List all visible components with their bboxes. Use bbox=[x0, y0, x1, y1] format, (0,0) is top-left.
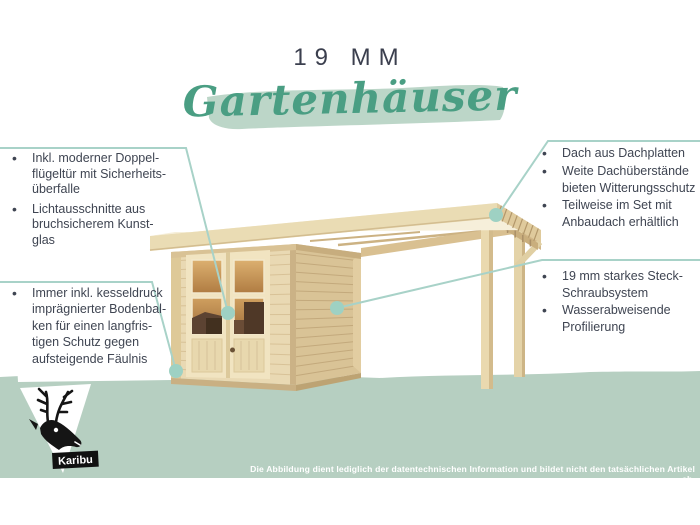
feature-bullet: Inkl. moderner Doppel- flügeltür mit Sic… bbox=[12, 151, 194, 198]
ground-band bbox=[0, 371, 700, 478]
callout-dot-door bbox=[221, 306, 235, 320]
garden-house-illustration bbox=[150, 203, 541, 391]
bullet-marker bbox=[542, 163, 562, 181]
feature-bullet: Immer inkl. kesseldruck imprägnierter Bo… bbox=[12, 285, 194, 367]
bullet-marker bbox=[542, 145, 562, 163]
callout-block-right-middle: 19 mm starkes Steck- Schraubsystem Wasse… bbox=[542, 268, 700, 336]
feature-text-line: Anbaudach erhältlich bbox=[562, 214, 700, 231]
callout-block-left-top: Inkl. moderner Doppel- flügeltür mit Sic… bbox=[12, 151, 194, 252]
feature-bullet: Teilweise im Set mit Anbaudach erhältlic… bbox=[542, 197, 700, 231]
feature-text-line: Weite Dachüberstände bbox=[562, 163, 700, 180]
house-side-wall bbox=[296, 244, 361, 385]
page-title: 19 MM bbox=[0, 44, 700, 72]
callout-block-left-bottom: Immer inkl. kesseldruck imprägnierter Bo… bbox=[12, 285, 194, 367]
feature-text-line: ken für einen langfris- bbox=[32, 318, 194, 334]
disclaimer-text: Die Abbildung dient lediglich der datent… bbox=[235, 464, 695, 484]
feature-text-line: glas bbox=[32, 233, 194, 249]
bullet-marker bbox=[542, 268, 562, 286]
feature-text-line: Schraubsystem bbox=[562, 285, 700, 302]
feature-text-line: Teilweise im Set mit bbox=[562, 197, 700, 214]
feature-text-line: tigen Schutz gegen bbox=[32, 334, 194, 350]
feature-bullet: Lichtausschnitte aus bruchsicherem Kunst… bbox=[12, 202, 194, 249]
callout-dot-roof bbox=[489, 208, 503, 222]
feature-text-line: aufsteigende Fäulnis bbox=[32, 351, 194, 367]
bullet-marker bbox=[12, 202, 32, 219]
logo-label: Karibu bbox=[52, 451, 99, 469]
feature-text-line: flügeltür mit Sicherheits- bbox=[32, 167, 194, 183]
feature-text-line: Lichtausschnitte aus bbox=[32, 202, 194, 218]
feature-bullet: Wasserabweisende Profilierung bbox=[542, 302, 700, 336]
canopy-post-front bbox=[481, 229, 493, 389]
feature-bullet: Weite Dachüberstände bieten Witterungssc… bbox=[542, 163, 700, 197]
feature-text-line: Immer inkl. kesseldruck bbox=[32, 285, 194, 301]
bullet-marker bbox=[12, 151, 32, 168]
feature-text-line: Dach aus Dachplatten bbox=[562, 145, 700, 162]
feature-text-line: Inkl. moderner Doppel- bbox=[32, 151, 194, 167]
canopy-post-back bbox=[514, 225, 525, 377]
callout-block-right-top: Dach aus Dachplatten Weite Dachüberständ… bbox=[542, 145, 700, 231]
feature-text-line: bruchsicherem Kunst- bbox=[32, 217, 194, 233]
bullet-marker bbox=[542, 302, 562, 320]
feature-text-line: bieten Witterungsschutz bbox=[562, 180, 700, 197]
bullet-marker bbox=[12, 285, 32, 302]
bullet-marker bbox=[542, 197, 562, 215]
feature-text-line: Wasserabweisende bbox=[562, 302, 700, 319]
feature-text-line: Profilierung bbox=[562, 319, 700, 336]
feature-bullet: 19 mm starkes Steck- Schraubsystem bbox=[542, 268, 700, 302]
infographic-page: Karibu 19 MM Gartenhäuser Inkl. moderner… bbox=[0, 0, 700, 525]
feature-text-line: 19 mm starkes Steck- bbox=[562, 268, 700, 285]
feature-bullet: Dach aus Dachplatten bbox=[542, 145, 700, 163]
callout-dot-wall bbox=[330, 301, 344, 315]
feature-text-line: imprägnierter Bodenbal- bbox=[32, 301, 194, 317]
feature-text-line: überfalle bbox=[32, 182, 194, 198]
door-handle bbox=[230, 348, 235, 353]
logo-brand-text: Karibu bbox=[58, 454, 93, 468]
